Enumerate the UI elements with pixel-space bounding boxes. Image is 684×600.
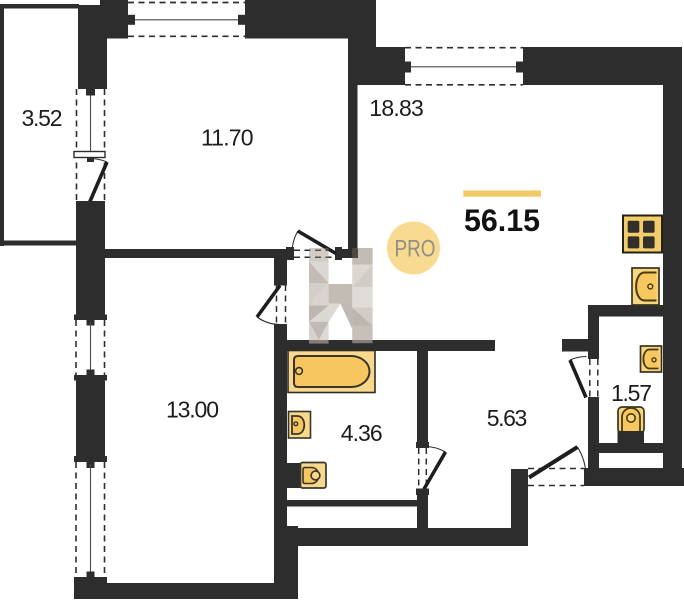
svg-text:3.52: 3.52 — [22, 105, 63, 131]
svg-text:18.83: 18.83 — [369, 95, 424, 121]
svg-text:13.00: 13.00 — [166, 397, 219, 423]
svg-text:56.15: 56.15 — [464, 202, 540, 238]
svg-text:11.70: 11.70 — [201, 125, 254, 151]
svg-text:5.63: 5.63 — [487, 405, 528, 431]
svg-text:1.57: 1.57 — [611, 380, 652, 406]
svg-text:PRO: PRO — [395, 236, 436, 263]
svg-text:4.36: 4.36 — [341, 420, 383, 446]
